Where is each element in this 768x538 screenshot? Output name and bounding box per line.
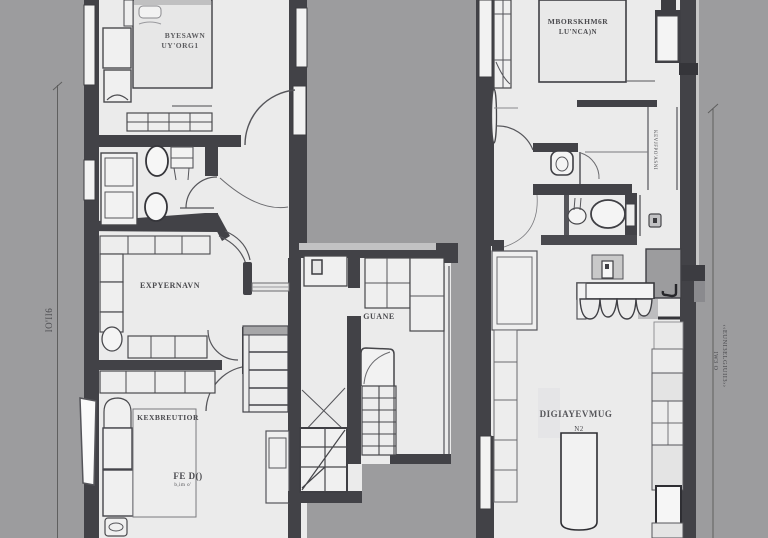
svg-text:BYESAWN: BYESAWN <box>165 31 206 40</box>
svg-text:UY'ORG1: UY'ORG1 <box>161 41 198 50</box>
svg-text:MBORSKHM6R: MBORSKHM6R <box>548 17 608 26</box>
svg-text:EXPYERNAVN: EXPYERNAVN <box>140 281 200 290</box>
svg-text:KEVJFPO'ASNI: KEVJFPO'ASNI <box>652 130 657 170</box>
svg-text:GUANE: GUANE <box>363 312 394 321</box>
svg-text:‹‹EUNI3ELGIUII3››: ‹‹EUNI3ELGIUII3›› <box>721 324 728 387</box>
svg-text:LU'NCA)N: LU'NCA)N <box>559 28 597 36</box>
svg-text:N2: N2 <box>574 425 584 433</box>
svg-text:b,im o': b,im o' <box>174 483 191 488</box>
svg-text:FE D(): FE D() <box>173 471 202 481</box>
svg-text:IW3 O: IW3 O <box>712 352 718 371</box>
svg-text:DIGIAYEVMUG: DIGIAYEVMUG <box>540 409 613 419</box>
svg-text:KEXBREUTIOR: KEXBREUTIOR <box>137 413 199 422</box>
svg-text:IO'II6: IO'II6 <box>44 308 54 333</box>
